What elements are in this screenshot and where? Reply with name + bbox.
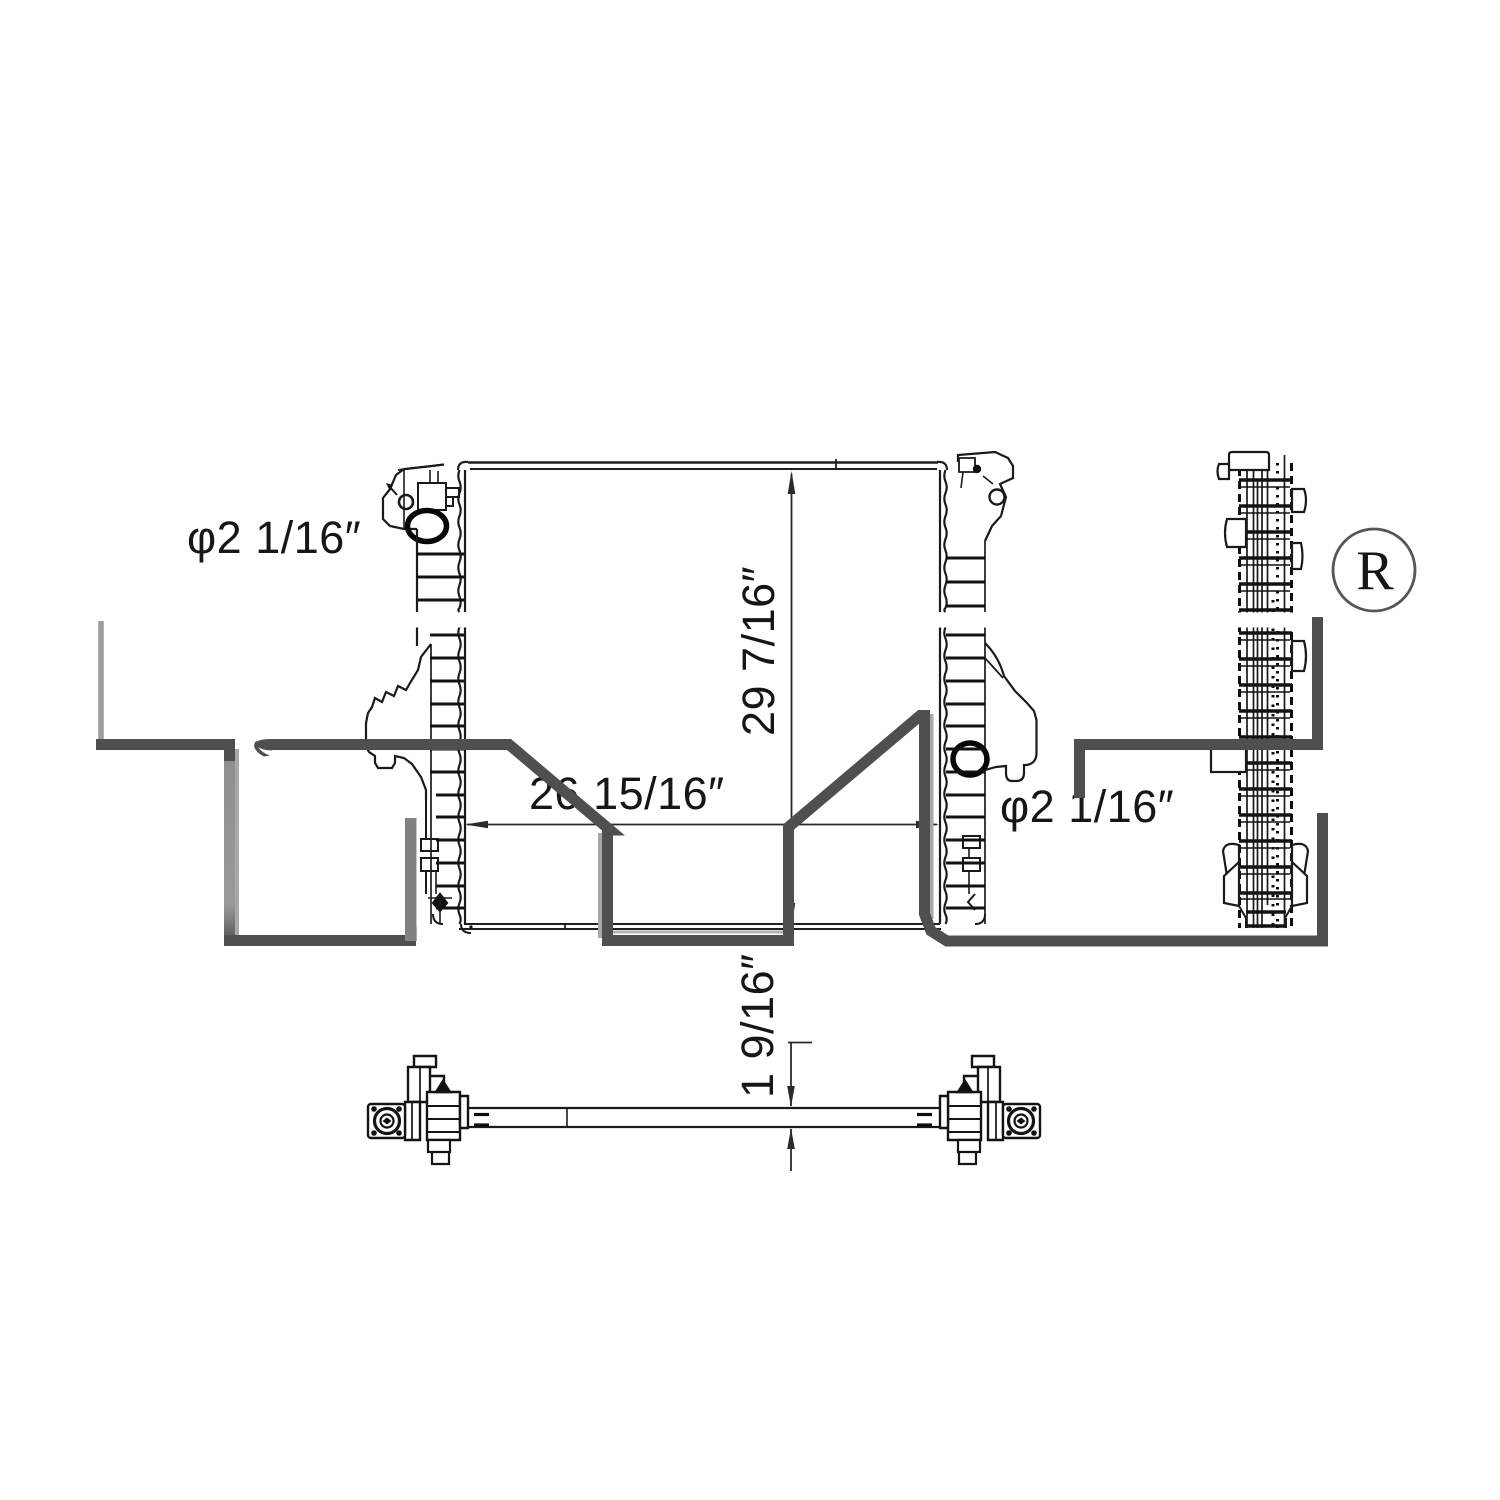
svg-text:φ21/16″: φ21/16″: [187, 512, 361, 563]
svg-text:R: R: [1356, 540, 1394, 602]
svg-text:φ21/16″: φ21/16″: [1000, 781, 1174, 832]
svg-text:19/16″: 19/16″: [732, 953, 783, 1098]
svg-text:297/16″: 297/16″: [733, 566, 784, 736]
svg-text:2615/16″: 2615/16″: [529, 768, 725, 819]
